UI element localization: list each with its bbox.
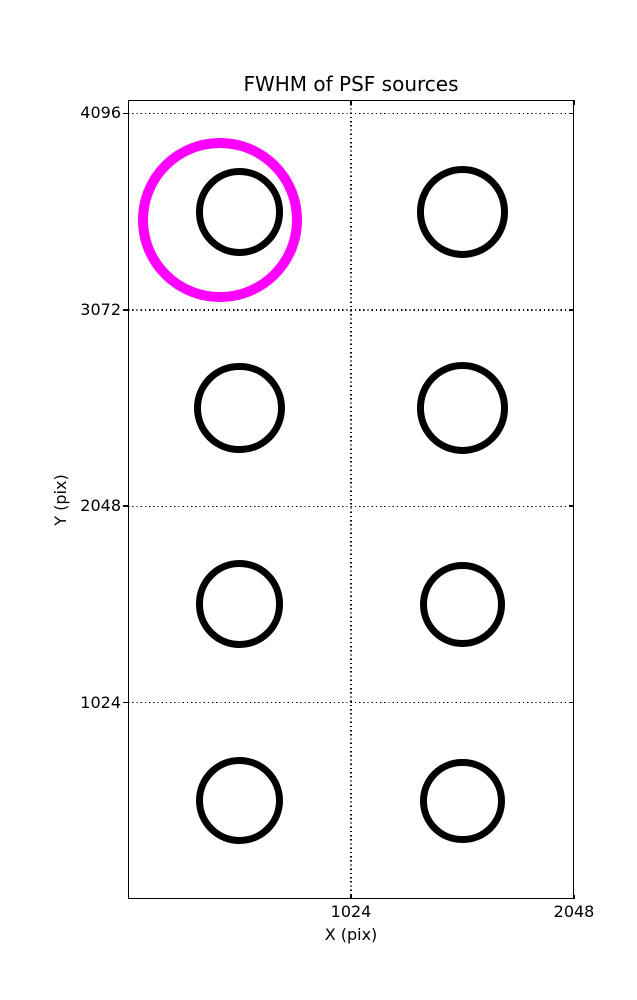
psf-source-circle [194, 363, 284, 453]
y-tick-mark-left [123, 505, 128, 507]
x-tick-label: 1024 [311, 902, 391, 922]
psf-source-circle [196, 757, 283, 844]
x-tick-label: 2048 [534, 902, 614, 922]
y-tick-mark-right [569, 505, 574, 507]
psf-source-circle [420, 759, 504, 843]
psf-source-circle [196, 560, 284, 648]
psf-source-circle [420, 562, 506, 648]
x-tick-mark-bottom [573, 895, 575, 900]
figure: FWHM of PSF sources Y (pix) X (pix) 1024… [0, 0, 637, 1000]
psf-source-circle [417, 362, 509, 454]
y-tick-mark-right [569, 309, 574, 311]
y-tick-mark-right [569, 702, 574, 704]
y-tick-label: 1024 [0, 693, 121, 713]
x-axis-label: X (pix) [128, 925, 574, 945]
highlight-circle [138, 138, 302, 302]
x-tick-mark-top [573, 100, 575, 105]
chart-title: FWHM of PSF sources [128, 72, 574, 96]
y-tick-label: 2048 [0, 496, 121, 516]
y-tick-mark-left [123, 702, 128, 704]
y-tick-label: 4096 [0, 103, 121, 123]
y-tick-mark-left [123, 113, 128, 115]
y-tick-mark-right [569, 113, 574, 115]
x-tick-mark-top [350, 100, 352, 105]
psf-source-circle [417, 166, 509, 258]
v-gridline [350, 100, 351, 899]
y-tick-label: 3072 [0, 300, 121, 320]
x-tick-mark-bottom [350, 895, 352, 900]
y-tick-mark-left [123, 309, 128, 311]
